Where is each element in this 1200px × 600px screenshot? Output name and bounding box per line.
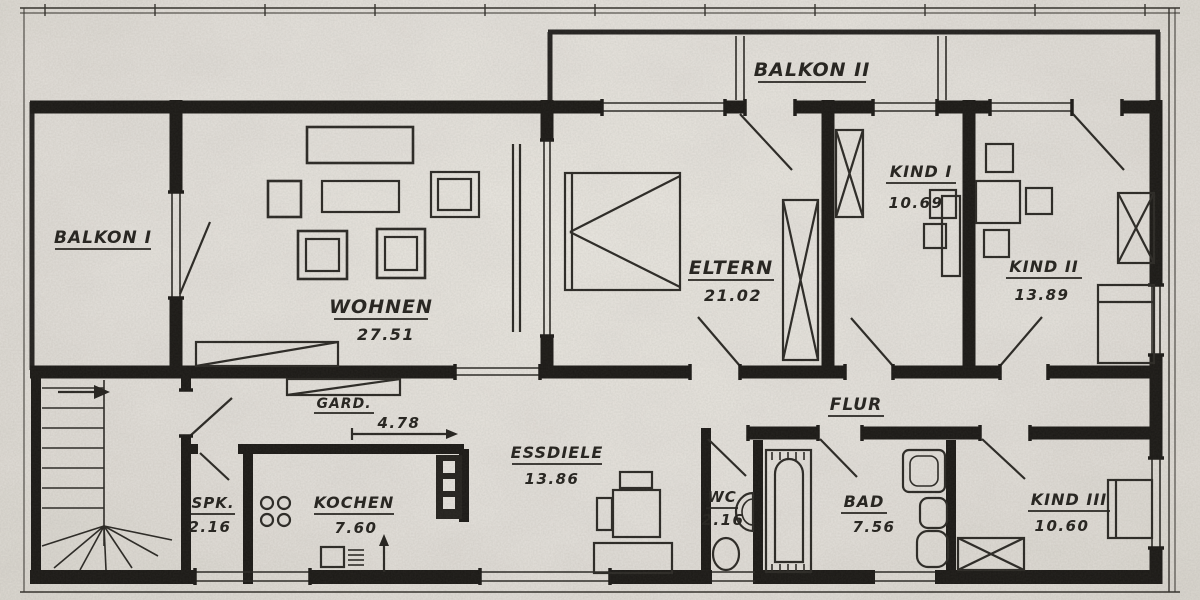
- room-area: 2.16: [701, 511, 744, 529]
- room-area: 13.86: [525, 470, 580, 488]
- room-area: 10.69: [889, 194, 944, 212]
- room-label: KIND II: [1009, 257, 1079, 276]
- room-area: 21.02: [704, 286, 762, 305]
- room-label: ELTERN: [689, 257, 773, 279]
- room-label: BALKON II: [754, 59, 871, 81]
- room-label: BAD: [844, 492, 885, 511]
- blueprint-sheet: WOHNEN 27.51 BALKON I BALKON II ELTERN 2…: [0, 0, 1200, 600]
- room-area: 13.89: [1015, 286, 1070, 304]
- room-balkon1: BALKON I: [54, 228, 152, 249]
- room-area: 27.51: [357, 325, 415, 344]
- room-label: KOCHEN: [314, 493, 394, 512]
- room-label: FLUR: [830, 395, 882, 415]
- room-label: BALKON I: [54, 228, 152, 248]
- dimension-value: 4.78: [376, 414, 420, 432]
- room-label: WC: [707, 488, 737, 506]
- tall-cabinet: [436, 455, 462, 519]
- room-balkon2: BALKON II: [754, 59, 871, 82]
- room-area: 2.16: [188, 518, 231, 536]
- room-label: GARD.: [316, 396, 371, 412]
- room-label: SPK.: [191, 494, 234, 512]
- room-label: KIND III: [1031, 490, 1107, 509]
- room-area: 7.60: [334, 519, 377, 537]
- room-flur: FLUR: [828, 395, 884, 416]
- room-area: 7.56: [852, 518, 895, 536]
- room-label: KIND I: [890, 162, 953, 181]
- room-label: ESSDIELE: [511, 443, 604, 462]
- room-label: WOHNEN: [329, 296, 433, 318]
- room-area: 10.60: [1035, 517, 1090, 535]
